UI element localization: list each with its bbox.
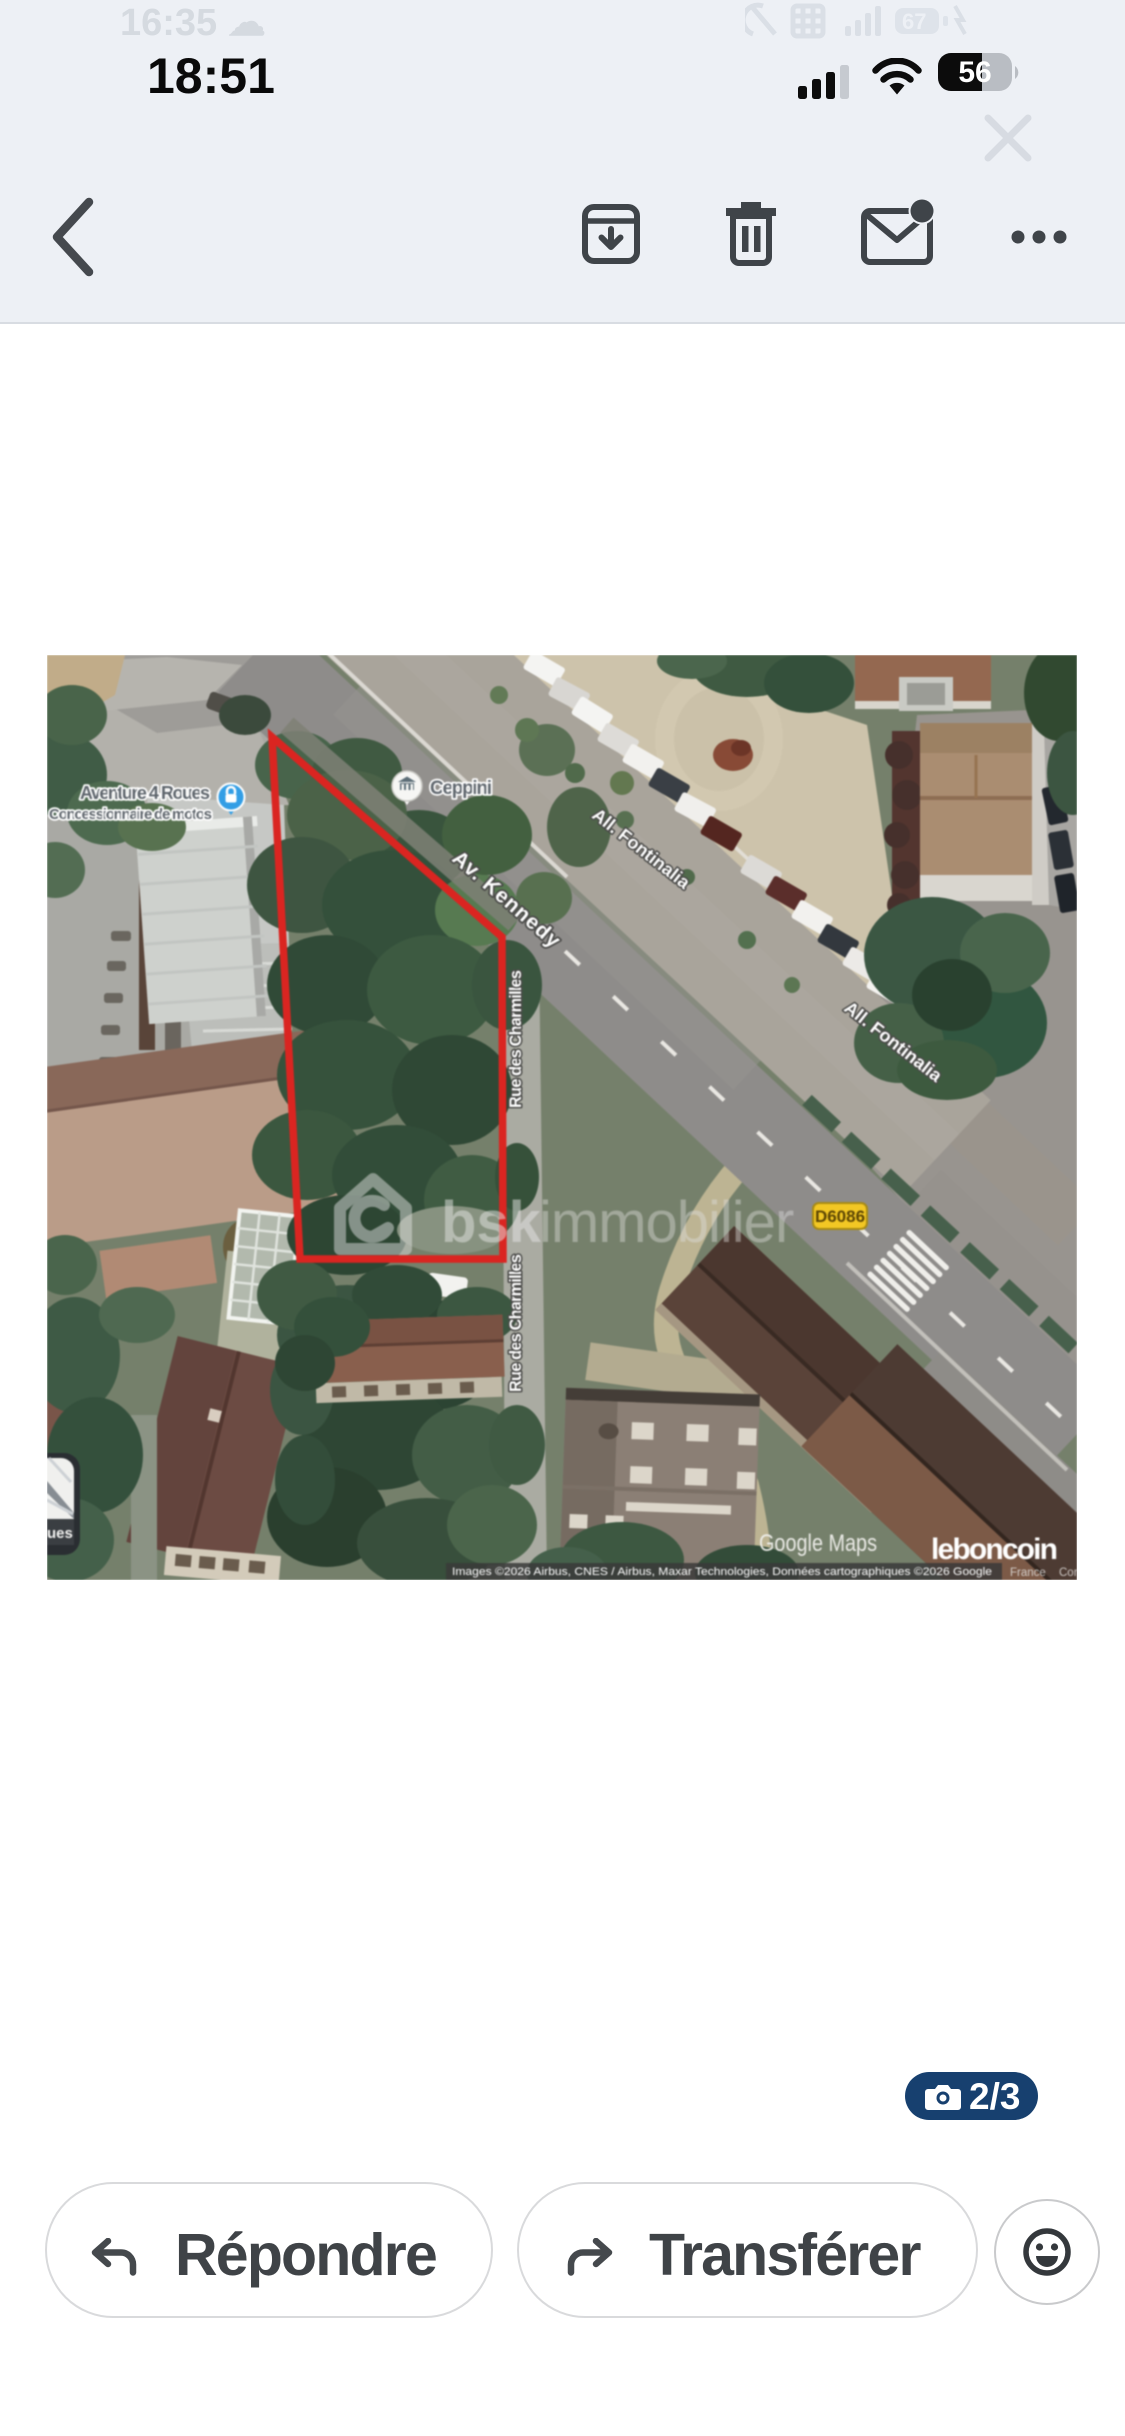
svg-text:ues: ues [47,1525,73,1542]
svg-text:Aventure 4 Roues: Aventure 4 Roues [80,783,210,803]
svg-text:56: 56 [958,56,991,89]
svg-text:Google Maps: Google Maps [759,1530,877,1557]
svg-text:Con: Con [1059,1567,1077,1579]
svg-text:D6086: D6086 [815,1207,865,1226]
svg-text:Rue des Charmilles: Rue des Charmilles [507,970,525,1108]
svg-text:Images ©2026 Airbus, CNES / Ai: Images ©2026 Airbus, CNES / Airbus, Maxa… [452,1566,992,1578]
svg-text:67: 67 [902,9,926,34]
svg-text:immobilier: immobilier [539,1190,794,1255]
svg-text:leboncoin: leboncoin [931,1533,1058,1566]
svg-text:Ceppini: Ceppini [430,778,492,799]
svg-text:Rue des Charmilles: Rue des Charmilles [507,1254,525,1392]
svg-text:Concessionnaire de motos: Concessionnaire de motos [49,806,212,823]
svg-text:France: France [1010,1567,1046,1579]
svg-text:bsk: bsk [441,1190,542,1255]
